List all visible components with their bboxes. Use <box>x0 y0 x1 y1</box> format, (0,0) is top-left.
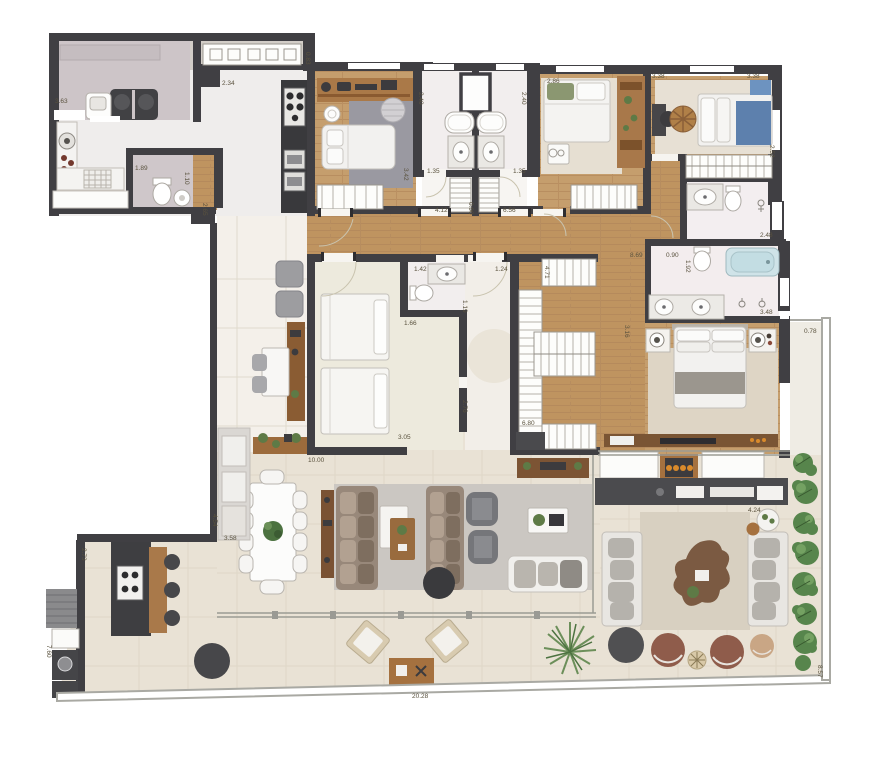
svg-text:2.73: 2.73 <box>80 548 87 561</box>
svg-text:1.19: 1.19 <box>461 300 468 313</box>
svg-text:3.38: 3.38 <box>652 73 665 80</box>
svg-text:3.42: 3.42 <box>402 168 409 181</box>
svg-text:0.83: 0.83 <box>304 52 311 65</box>
svg-text:3.48: 3.48 <box>760 309 773 316</box>
svg-text:3.16: 3.16 <box>623 325 630 338</box>
svg-text:2.52: 2.52 <box>768 145 775 158</box>
svg-text:1.24: 1.24 <box>495 266 508 273</box>
svg-text:6.80: 6.80 <box>522 420 535 427</box>
svg-text:10.00: 10.00 <box>308 457 325 464</box>
svg-text:1.92: 1.92 <box>684 260 691 273</box>
svg-text:4.54: 4.54 <box>211 514 218 527</box>
svg-text:20.28: 20.28 <box>412 693 429 700</box>
svg-text:1.89: 1.89 <box>135 165 148 172</box>
svg-text:2.48: 2.48 <box>760 232 773 239</box>
svg-text:1.35: 1.35 <box>513 168 526 175</box>
svg-text:4.24: 4.24 <box>748 507 761 514</box>
svg-text:2.40: 2.40 <box>520 92 527 105</box>
svg-text:2.86: 2.86 <box>547 78 560 85</box>
svg-text:7.60: 7.60 <box>45 645 52 658</box>
svg-text:0.90: 0.90 <box>666 252 679 259</box>
svg-text:8.57: 8.57 <box>816 665 823 678</box>
svg-text:4.12: 4.12 <box>435 207 448 214</box>
svg-text:8.69: 8.69 <box>630 252 643 259</box>
svg-text:1.10: 1.10 <box>183 172 190 185</box>
svg-text:1.35: 1.35 <box>427 168 440 175</box>
svg-text:1.66: 1.66 <box>404 320 417 327</box>
svg-text:3.58: 3.58 <box>224 535 237 542</box>
svg-text:4.71: 4.71 <box>543 266 550 279</box>
svg-text:2.34: 2.34 <box>222 80 235 87</box>
svg-text:3.05: 3.05 <box>398 434 411 441</box>
svg-text:2.65: 2.65 <box>201 203 208 216</box>
svg-text:6.56: 6.56 <box>503 207 516 214</box>
svg-text:2.76: 2.76 <box>461 400 468 413</box>
svg-text:0.90: 0.90 <box>467 202 474 215</box>
svg-text:2.40: 2.40 <box>417 92 424 105</box>
svg-text:3.38: 3.38 <box>747 73 760 80</box>
svg-text:1.42: 1.42 <box>414 266 427 273</box>
svg-text:3.63: 3.63 <box>55 98 68 105</box>
svg-text:0.78: 0.78 <box>804 328 817 335</box>
